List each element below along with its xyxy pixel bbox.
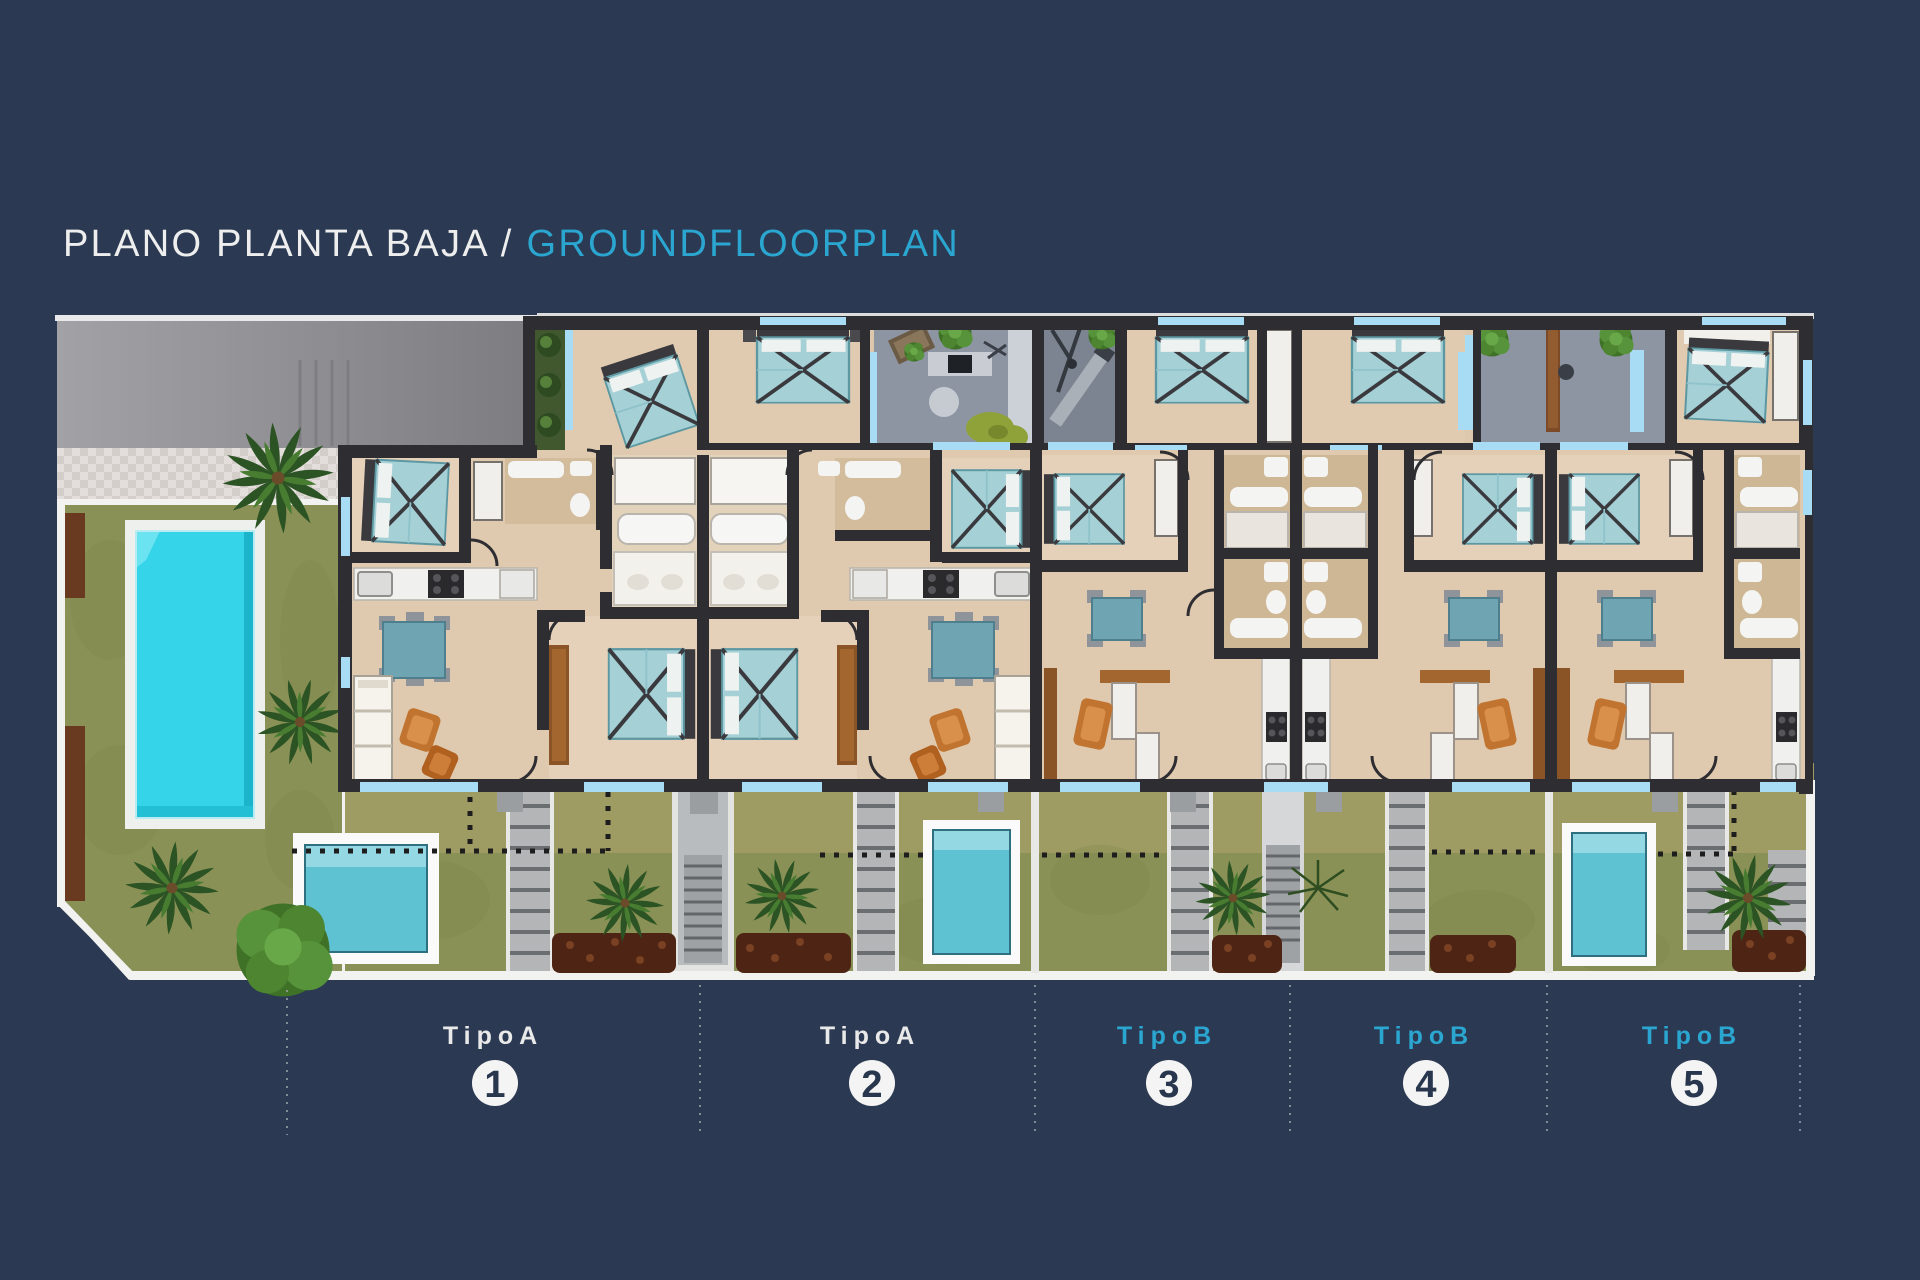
svg-text:3: 3 (1158, 1064, 1179, 1106)
svg-text:TipoB: TipoB (1642, 1022, 1742, 1050)
svg-text:1: 1 (484, 1064, 505, 1106)
svg-text:PLANO PLANTA BAJA / GROUNDFLO: PLANO PLANTA BAJA / GROUNDFLOORPLAN (63, 223, 960, 265)
svg-text:4: 4 (1415, 1064, 1436, 1106)
svg-text:2: 2 (861, 1064, 882, 1106)
svg-text:TipoA: TipoA (443, 1022, 543, 1050)
svg-text:TipoB: TipoB (1117, 1022, 1217, 1050)
svg-text:TipoB: TipoB (1374, 1022, 1474, 1050)
svg-text:TipoA: TipoA (820, 1022, 920, 1050)
svg-text:5: 5 (1683, 1064, 1704, 1106)
